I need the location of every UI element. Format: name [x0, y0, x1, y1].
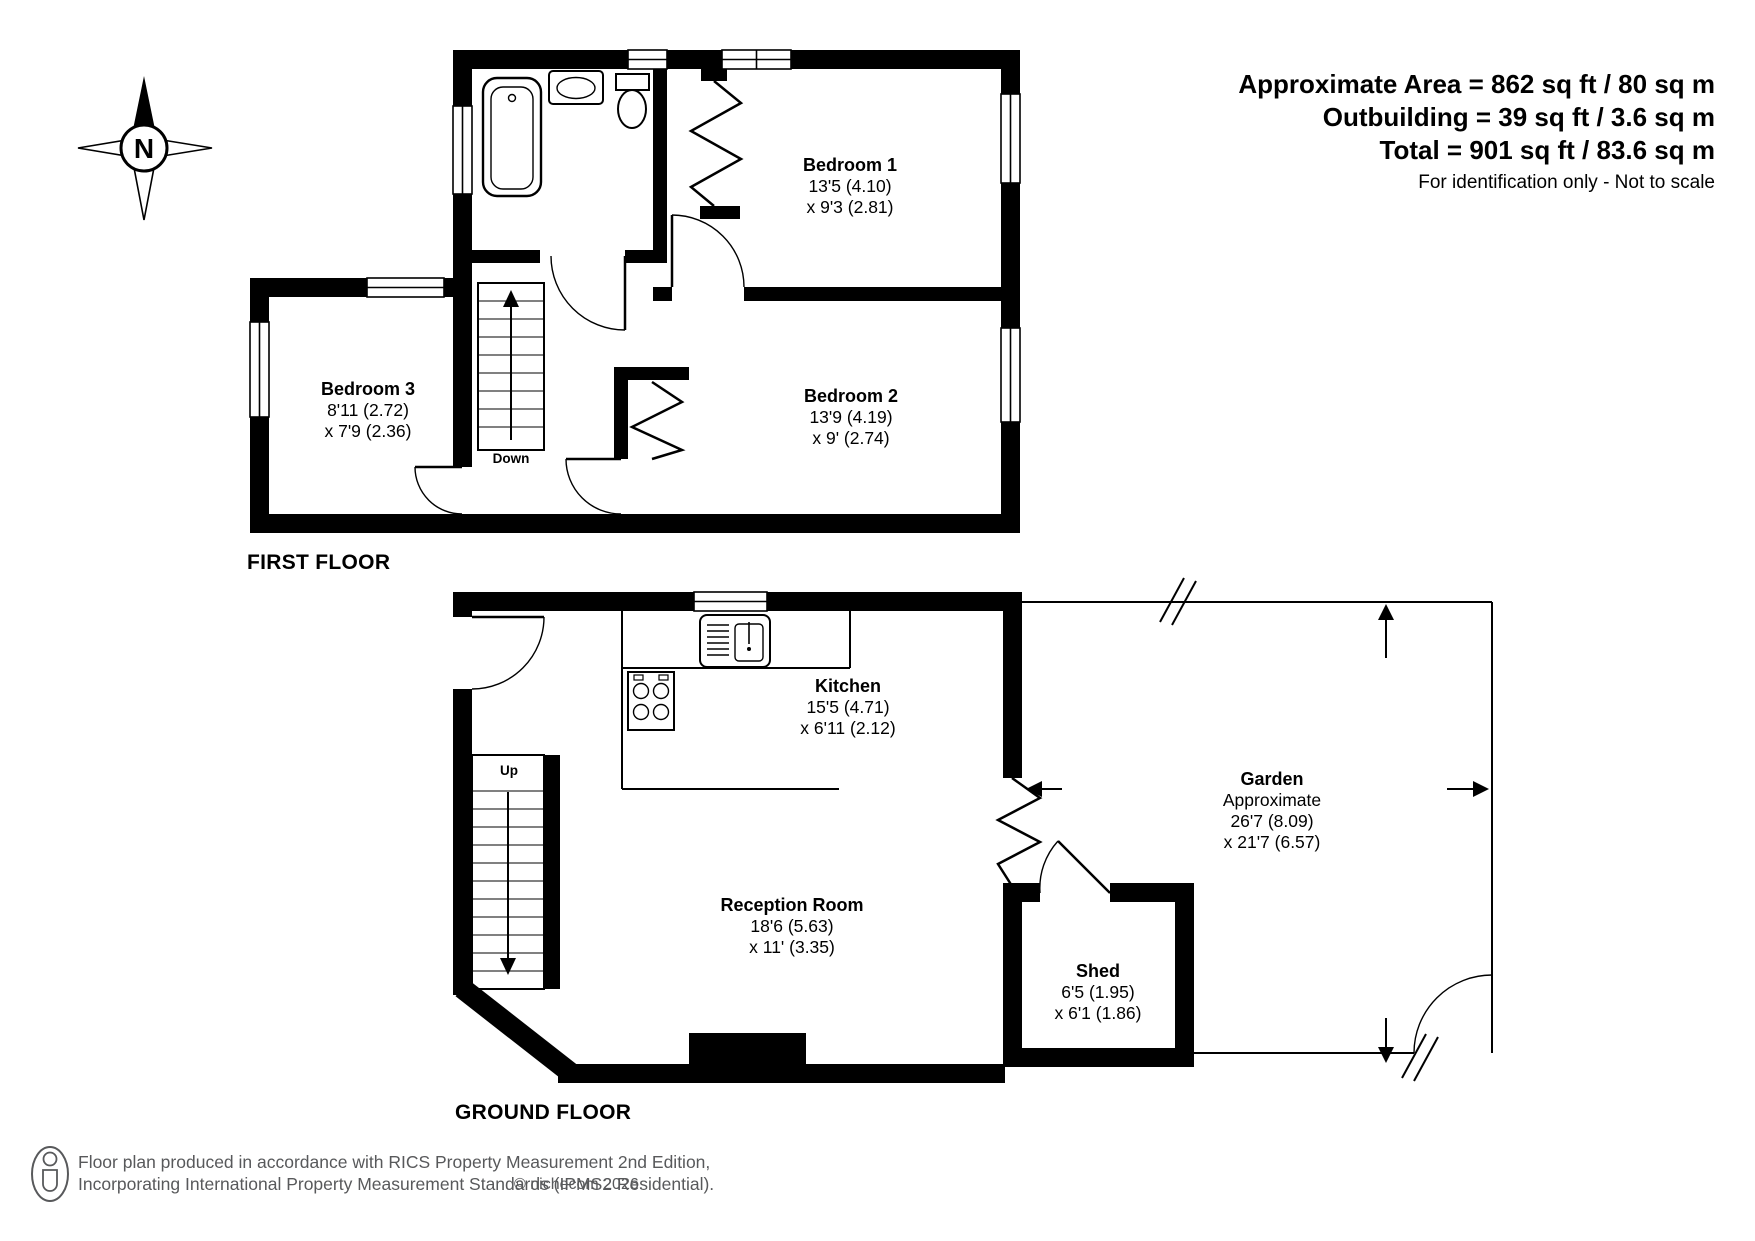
compass-north-label: N: [134, 133, 154, 164]
garden-gate-arc: [1414, 975, 1492, 1053]
garden-dim1: 26'7 (8.09): [1223, 811, 1321, 832]
approximate-area-line: Approximate Area = 862 sq ft / 80 sq m: [1238, 68, 1715, 101]
room-label-garden: Garden Approximate 26'7 (8.09) x 21'7 (6…: [1223, 769, 1321, 853]
bathroom-sink-icon: [549, 71, 603, 104]
reception-dim1: 18'6 (5.63): [720, 916, 863, 937]
ground-floor-title: GROUND FLOOR: [455, 1101, 631, 1125]
bedroom3-dim1: 8'11 (2.72): [321, 400, 415, 421]
shed-dim1: 6'5 (1.95): [1055, 982, 1142, 1003]
toilet-icon: [616, 74, 649, 128]
total-area-line: Total = 901 sq ft / 83.6 sq m: [1238, 134, 1715, 167]
front-door-arc: [453, 617, 544, 689]
copyright-text: © nichecom 2026.: [514, 1176, 643, 1194]
floorplan-page: N: [0, 0, 1755, 1241]
stairs-up-label: Up: [500, 763, 518, 778]
garden-name: Garden: [1223, 769, 1321, 790]
bedroom3-name: Bedroom 3: [321, 379, 415, 400]
wardrobe-zigzag-icon: [691, 81, 741, 206]
room-label-bedroom3: Bedroom 3 8'11 (2.72) x 7'9 (2.36): [321, 379, 415, 442]
wardrobe-zigzag-icon: [632, 382, 682, 459]
bedroom1-name: Bedroom 1: [803, 155, 897, 176]
window-icon: [694, 592, 767, 611]
outbuilding-line: Outbuilding = 39 sq ft / 3.6 sq m: [1238, 101, 1715, 134]
garden-dim2: x 21'7 (6.57): [1223, 832, 1321, 853]
garden-door-zigzag-icon: [998, 778, 1040, 886]
bedroom2-name: Bedroom 2: [804, 386, 898, 407]
room-label-reception: Reception Room 18'6 (5.63) x 11' (3.35): [720, 895, 863, 958]
stairs-down-icon: [478, 283, 544, 450]
room-label-kitchen: Kitchen 15'5 (4.71) x 6'11 (2.12): [800, 676, 895, 739]
stove-icon: [628, 672, 674, 730]
stairs-down-label: Down: [493, 451, 530, 466]
person-badge-icon: [32, 1147, 68, 1201]
reception-name: Reception Room: [720, 895, 863, 916]
first-floor-title: FIRST FLOOR: [247, 551, 390, 575]
bedroom1-dim2: x 9'3 (2.81): [803, 197, 897, 218]
footer-line1: Floor plan produced in accordance with R…: [78, 1152, 714, 1174]
bedroom1-dim1: 13'5 (4.10): [803, 176, 897, 197]
bathtub-icon: [483, 78, 541, 196]
kitchen-dim2: x 6'11 (2.12): [800, 718, 895, 739]
area-summary: Approximate Area = 862 sq ft / 80 sq m O…: [1238, 68, 1715, 194]
room-label-bedroom2: Bedroom 2 13'9 (4.19) x 9' (2.74): [804, 386, 898, 449]
scale-disclaimer: For identification only - Not to scale: [1238, 172, 1715, 194]
ground-floor-plan: [453, 578, 1492, 1083]
bedroom2-dim1: 13'9 (4.19): [804, 407, 898, 428]
kitchen-dim1: 15'5 (4.71): [800, 697, 895, 718]
compass-icon: N: [78, 76, 212, 220]
first-floor-plan: [250, 50, 1020, 533]
room-label-bedroom1: Bedroom 1 13'5 (4.10) x 9'3 (2.81): [803, 155, 897, 218]
room-label-shed: Shed 6'5 (1.95) x 6'1 (1.86): [1055, 961, 1142, 1024]
garden-note: Approximate: [1223, 790, 1321, 811]
bedroom3-dim2: x 7'9 (2.36): [321, 421, 415, 442]
stairs-up-icon: [472, 755, 560, 989]
shed-name: Shed: [1055, 961, 1142, 982]
reception-dim2: x 11' (3.35): [720, 937, 863, 958]
kitchen-sink-icon: [700, 615, 770, 667]
bedroom2-dim2: x 9' (2.74): [804, 428, 898, 449]
window-icon: [250, 50, 1020, 422]
kitchen-name: Kitchen: [800, 676, 895, 697]
shed-dim2: x 6'1 (1.86): [1055, 1003, 1142, 1024]
shed-door-arc: [1040, 841, 1110, 893]
